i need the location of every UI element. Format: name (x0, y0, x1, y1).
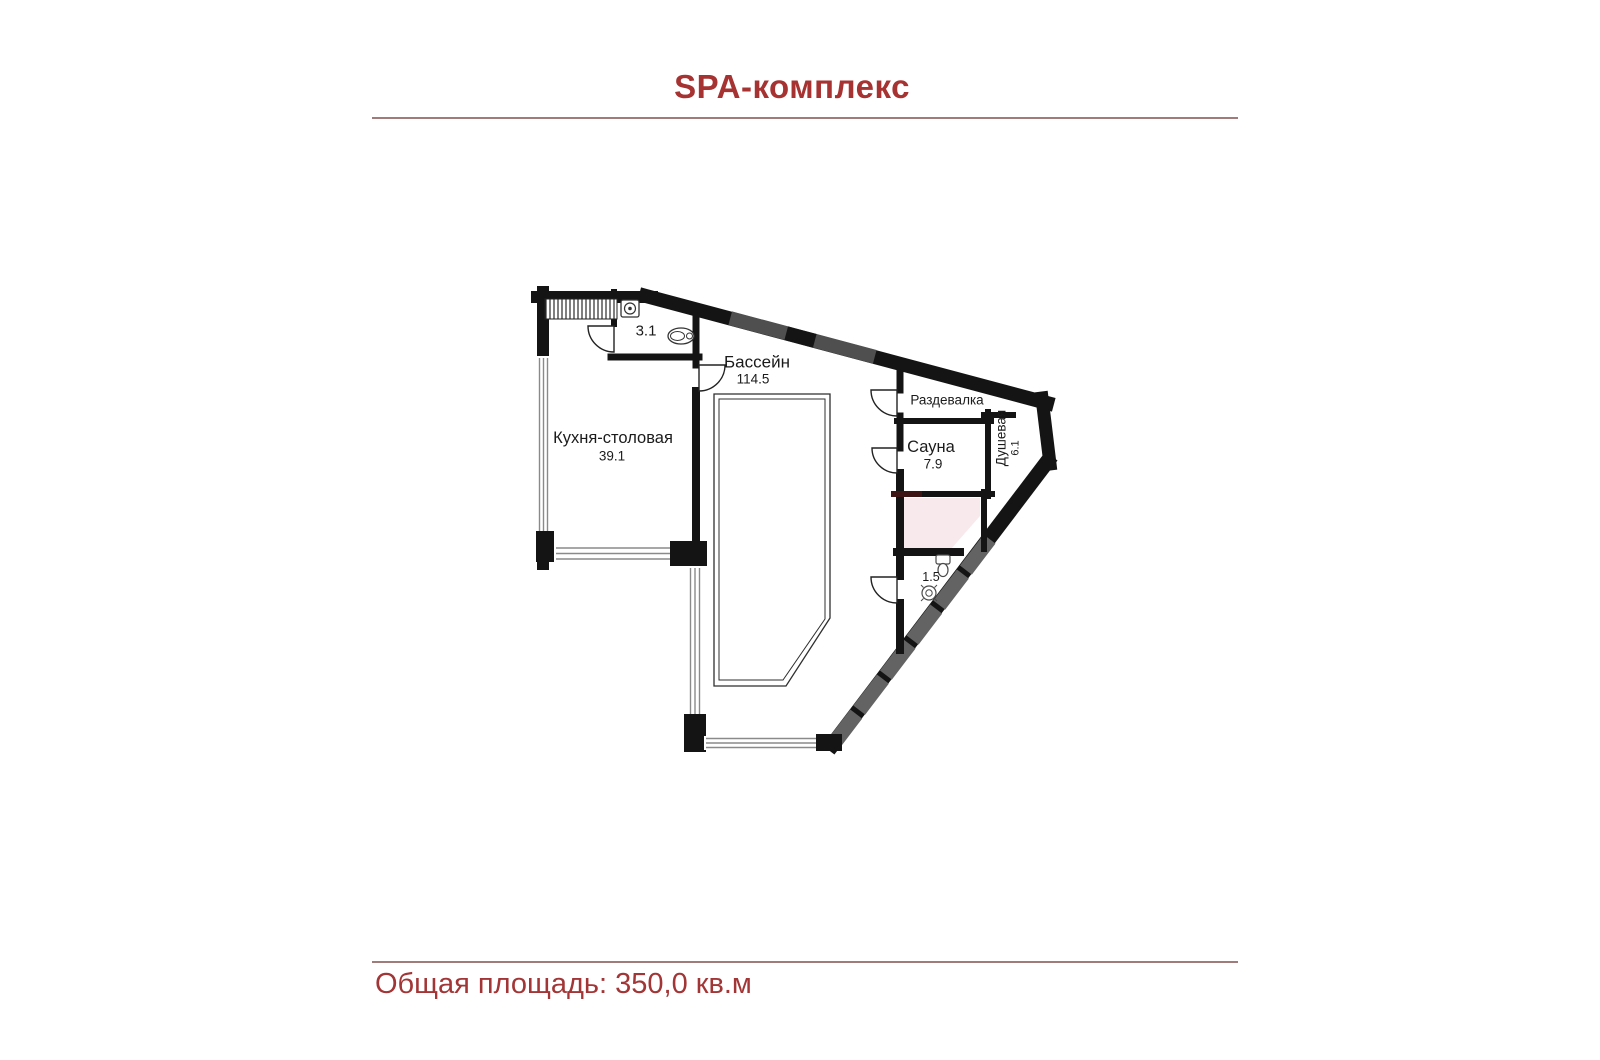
door-pool (699, 365, 725, 391)
pool-bottom-window (704, 734, 842, 751)
door-wc-top (588, 326, 614, 352)
floor-plan-drawing (520, 268, 1065, 768)
wall-corner (536, 531, 554, 562)
door-sauna (872, 448, 897, 473)
kitchen-left-window (536, 356, 549, 536)
washer-icon (621, 300, 639, 317)
wall-corner (684, 714, 706, 752)
wall-corner (816, 734, 842, 751)
pool-basin (714, 394, 830, 686)
floor-plan (520, 268, 1065, 768)
page-title: SPA-комплекс (674, 68, 910, 106)
pool-left-window (684, 566, 706, 752)
room-label-kitchen: Кухня-столовая (553, 430, 673, 447)
room-label-shower: Душевая (994, 410, 1008, 466)
room-label-dressing: Раздевалка (910, 393, 983, 407)
counter-hatch (545, 299, 617, 319)
room-label-shower-area: 6.1 (1011, 440, 1022, 455)
kitchen-bottom-window (536, 531, 707, 566)
highlighted-room-fill (904, 498, 980, 549)
room-label-sauna-area: 7.9 (924, 457, 943, 471)
sink-icon (668, 328, 694, 344)
door-wc-bottom (871, 577, 897, 603)
room-label-pool: Бассейн (724, 354, 790, 371)
room-label-wc-bottom-area: 1.5 (922, 571, 939, 584)
door-dressing (871, 390, 897, 416)
total-area-text: Общая площадь: 350,0 кв.м (375, 968, 752, 1001)
room-label-kitchen-area: 39.1 (599, 449, 625, 463)
bottom-divider (372, 961, 1238, 963)
wall-corner (670, 541, 707, 566)
top-divider (372, 117, 1238, 119)
room-label-sauna: Сауна (907, 439, 955, 456)
room-label-wc-top-area: 3.1 (636, 324, 657, 339)
washbasin-icon (921, 585, 937, 601)
room-label-pool-area: 114.5 (737, 372, 770, 386)
